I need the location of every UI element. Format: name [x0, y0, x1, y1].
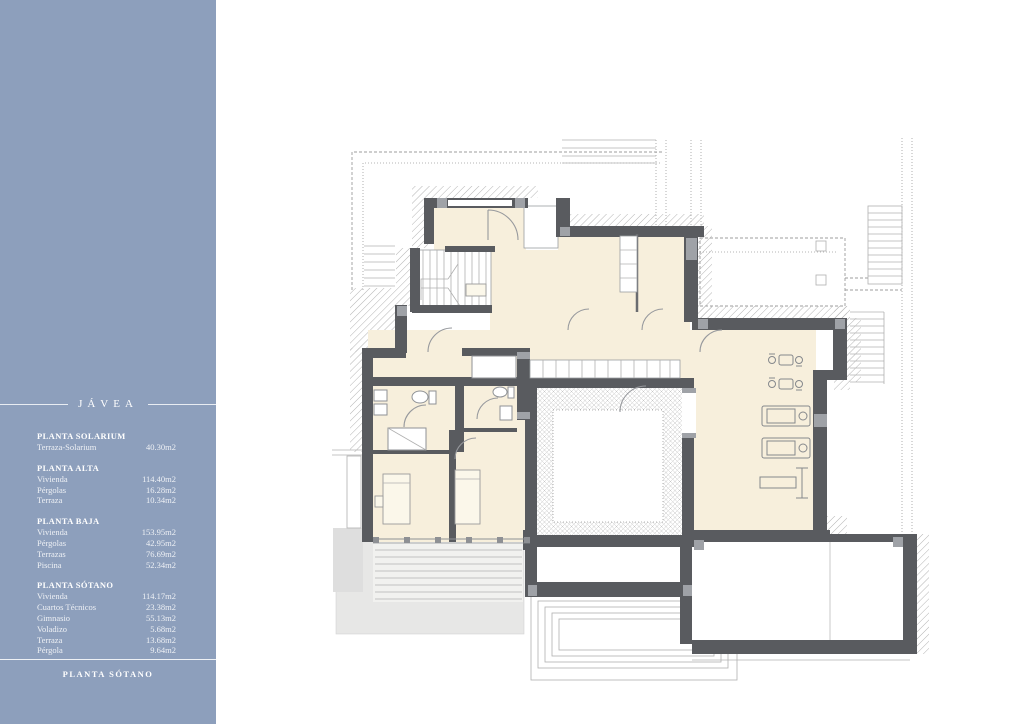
- project-title: JÁVEA: [78, 398, 138, 410]
- brochure-page: JÁVEA PLANTA SOLARIUM Terraza-Solarium40…: [0, 0, 1024, 724]
- area-section-rows: Vivienda114.40m2Pérgolas16.28m2Terraza10…: [37, 474, 176, 506]
- area-row: Piscina52.34m2: [37, 560, 176, 571]
- staircase: [415, 250, 491, 308]
- area-sections: PLANTA SOLARIUM Terraza-Solarium40.30m2 …: [37, 431, 176, 666]
- sidebar: JÁVEA PLANTA SOLARIUM Terraza-Solarium40…: [0, 0, 216, 724]
- sidebar-footer: PLANTA SÓTANO: [0, 659, 216, 679]
- area-section-rows: Vivienda114.17m2Cuartos Técnicos23.38m2G…: [37, 591, 176, 656]
- area-section-rows: Vivienda153.95m2Pérgolas42.95m2Terrazas7…: [37, 527, 176, 570]
- exterior-stairs-right: [868, 206, 902, 284]
- area-row: Vivienda114.17m2: [37, 591, 176, 602]
- area-section: PLANTA SÓTANO Vivienda114.17m2Cuartos Té…: [37, 580, 176, 656]
- exterior-stairs-left: [364, 246, 395, 286]
- area-row: Pérgola9.64m2: [37, 645, 176, 656]
- area-section-header: PLANTA SOLARIUM: [37, 431, 176, 442]
- area-section-rows: Terraza-Solarium40.30m2: [37, 442, 176, 453]
- area-row: Vivienda114.40m2: [37, 474, 176, 485]
- area-row: Cuartos Técnicos23.38m2: [37, 602, 176, 613]
- area-row: Voladizo5.68m2: [37, 624, 176, 635]
- area-row: Terraza13.68m2: [37, 635, 176, 646]
- project-title-row: JÁVEA: [0, 398, 216, 410]
- area-section-header: PLANTA ALTA: [37, 463, 176, 474]
- area-row: Terraza-Solarium40.30m2: [37, 442, 176, 453]
- area-row: Terraza10.34m2: [37, 495, 176, 506]
- area-row: Pérgolas16.28m2: [37, 485, 176, 496]
- area-row: Terrazas76.69m2: [37, 549, 176, 560]
- area-section-header: PLANTA BAJA: [37, 516, 176, 527]
- area-section-header: PLANTA SÓTANO: [37, 580, 176, 591]
- area-row: Vivienda153.95m2: [37, 527, 176, 538]
- title-rule-left: [0, 404, 68, 405]
- central-courtyard: [535, 388, 684, 535]
- area-section: PLANTA ALTA Vivienda114.40m2Pérgolas16.2…: [37, 463, 176, 506]
- area-section: PLANTA BAJA Vivienda153.95m2Pérgolas42.9…: [37, 516, 176, 570]
- area-row: Gimnasio55.13m2: [37, 613, 176, 624]
- title-rule-right: [148, 404, 216, 405]
- exterior-stairs-top: [562, 140, 656, 163]
- area-row: Pérgolas42.95m2: [37, 538, 176, 549]
- floor-label: PLANTA SÓTANO: [0, 669, 216, 679]
- area-section: PLANTA SOLARIUM Terraza-Solarium40.30m2: [37, 431, 176, 453]
